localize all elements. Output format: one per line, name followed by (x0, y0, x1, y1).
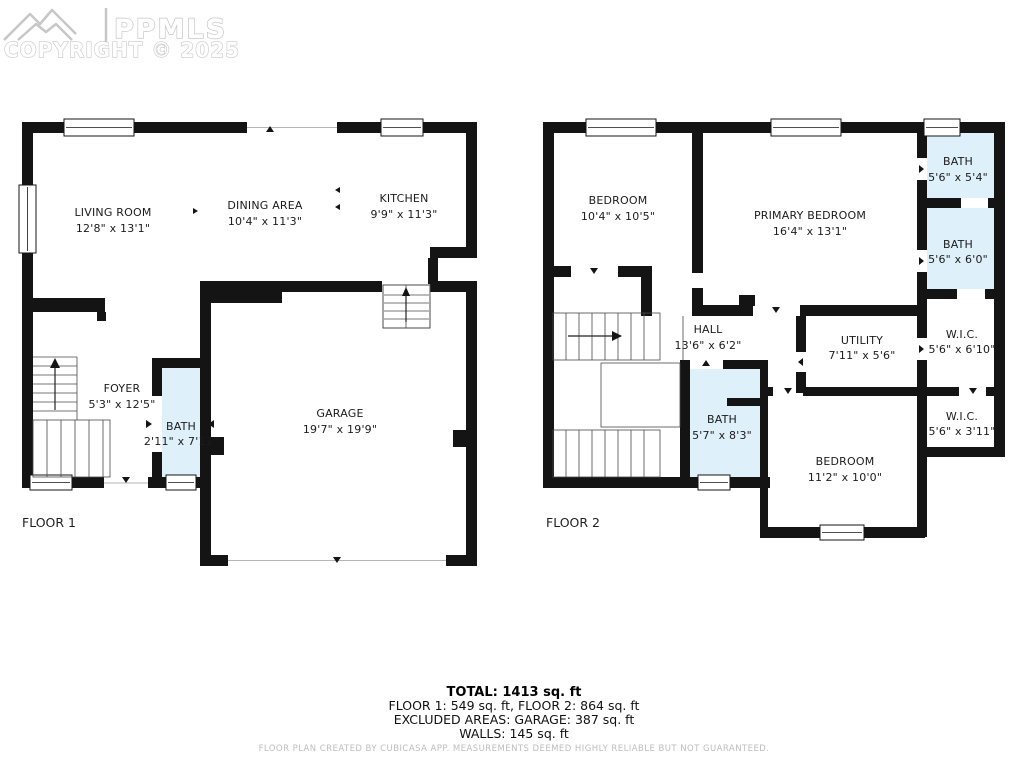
room-label-garage: GARAGE (316, 407, 363, 420)
copyright-text: COPYRIGHT © 2025 (4, 38, 240, 62)
room-dims-primary: 16'4" x 13'1" (773, 225, 847, 238)
room-dims-wic2: 5'6" x 3'11" (928, 425, 995, 438)
room-label-living: LIVING ROOM (74, 206, 151, 219)
room-dims-bath-f1: 2'11" x 7'11" (144, 435, 218, 448)
room-label-wic1: W.I.C. (946, 328, 978, 341)
room-label-bath1: BATH (943, 155, 973, 168)
stairs-down-arrow-icon (612, 331, 622, 341)
room-label-bedroom1: BEDROOM (589, 194, 648, 207)
room-dims-living: 12'8" x 13'1" (76, 222, 150, 235)
mountain-icon (4, 10, 76, 40)
room-label-dining: DINING AREA (227, 199, 303, 212)
room-label-bath-f1: BATH (166, 420, 196, 433)
room-label-wic2: W.I.C. (946, 410, 978, 423)
room-dims-garage: 19'7" x 19'9" (303, 423, 377, 436)
floor1-walls (22, 122, 477, 566)
room-dims-wic1: 5'6" x 6'10" (928, 343, 995, 356)
floor1-door-markers (122, 126, 341, 563)
summary-excluded: EXCLUDED AREAS: GARAGE: 387 sq. ft (394, 712, 635, 727)
watermark: PPMLS COPYRIGHT © 2025 (4, 8, 240, 62)
summary-walls: WALLS: 145 sq. ft (459, 726, 569, 741)
floor1-plan: LIVING ROOM 12'8" x 13'1" DINING AREA 10… (19, 119, 477, 566)
floor2-stairs (553, 313, 683, 477)
summary-block: TOTAL: 1413 sq. ft FLOOR 1: 549 sq. ft, … (259, 685, 770, 754)
room-label-bath2: BATH (943, 238, 973, 251)
room-label-bedroom2: BEDROOM (816, 455, 875, 468)
room-dims-utility: 7'11" x 5'6" (828, 349, 895, 362)
room-dims-foyer: 5'3" x 12'5" (88, 398, 155, 411)
room-dims-bedroom2: 11'2" x 10'0" (808, 471, 882, 484)
room-label-primary: PRIMARY BEDROOM (754, 209, 866, 222)
floor1-label: FLOOR 1 (22, 515, 76, 530)
floor1-stairs (33, 357, 110, 477)
room-dims-kitchen: 9'9" x 11'3" (370, 208, 437, 221)
summary-floors: FLOOR 1: 549 sq. ft, FLOOR 2: 864 sq. ft (389, 698, 640, 713)
room-dims-bath3: 5'7" x 8'3" (692, 429, 752, 442)
room-dims-bath2: 5'6" x 6'0" (928, 253, 988, 266)
room-label-hall: HALL (694, 323, 724, 336)
floor1-basement-stairs (383, 285, 430, 328)
floor-plan-canvas: PPMLS COPYRIGHT © 2025 (0, 0, 1024, 767)
room-label-foyer: FOYER (104, 382, 141, 395)
room-dims-hall: 13'6" x 6'2" (674, 339, 741, 352)
summary-disclaimer: FLOOR PLAN CREATED BY CUBICASA APP. MEAS… (259, 744, 770, 754)
room-label-kitchen: KITCHEN (379, 192, 428, 205)
room-dims-bedroom1: 10'4" x 10'5" (581, 210, 655, 223)
floor2-plan: BEDROOM 10'4" x 10'5" PRIMARY BEDROOM 16… (543, 119, 1005, 540)
floor2-label: FLOOR 2 (546, 515, 600, 530)
room-dims-dining: 10'4" x 11'3" (228, 215, 302, 228)
room-dims-bath1: 5'6" x 5'4" (928, 171, 988, 184)
stairs-up-arrow-icon (50, 358, 60, 368)
room-label-utility: UTILITY (841, 334, 883, 347)
room-label-bath3: BATH (707, 413, 737, 426)
